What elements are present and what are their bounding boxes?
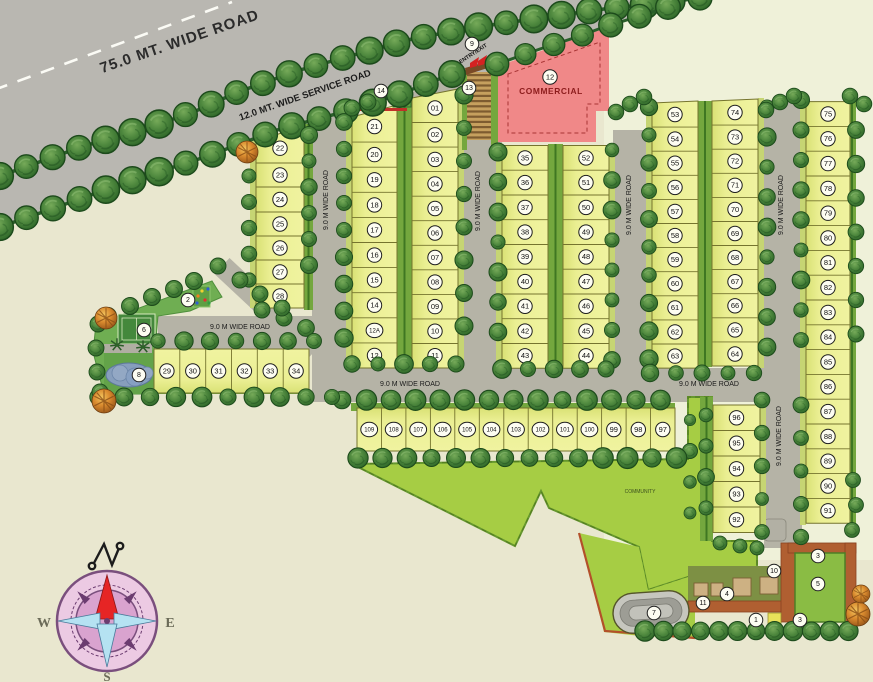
- svg-text:58: 58: [671, 231, 679, 240]
- svg-text:30: 30: [189, 366, 197, 375]
- svg-text:08: 08: [431, 277, 439, 286]
- svg-text:48: 48: [582, 252, 590, 261]
- svg-text:69: 69: [731, 229, 739, 238]
- svg-text:9.0 M WIDE ROAD: 9.0 M WIDE ROAD: [679, 381, 739, 388]
- svg-text:31: 31: [214, 366, 222, 375]
- svg-text:39: 39: [521, 252, 529, 261]
- svg-text:79: 79: [824, 209, 832, 218]
- svg-text:93: 93: [732, 490, 740, 499]
- svg-text:71: 71: [731, 181, 739, 190]
- svg-text:77: 77: [824, 159, 832, 168]
- svg-text:17: 17: [370, 225, 378, 234]
- svg-text:13: 13: [465, 85, 473, 92]
- svg-text:38: 38: [521, 227, 529, 236]
- svg-text:45: 45: [582, 326, 590, 335]
- svg-text:63: 63: [671, 351, 679, 360]
- svg-text:51: 51: [582, 178, 590, 187]
- svg-text:16: 16: [370, 250, 378, 259]
- svg-text:42: 42: [521, 326, 529, 335]
- svg-text:102: 102: [535, 427, 546, 433]
- svg-text:94: 94: [732, 464, 740, 473]
- svg-text:22: 22: [276, 144, 284, 153]
- svg-text:15: 15: [370, 275, 378, 284]
- svg-text:53: 53: [671, 110, 679, 119]
- svg-text:54: 54: [671, 134, 679, 143]
- svg-text:106: 106: [438, 427, 449, 433]
- svg-text:20: 20: [370, 150, 378, 159]
- svg-text:43: 43: [521, 351, 529, 360]
- svg-text:97: 97: [659, 425, 667, 434]
- svg-text:29: 29: [163, 366, 171, 375]
- svg-text:74: 74: [731, 108, 739, 117]
- svg-text:11: 11: [699, 600, 706, 607]
- svg-text:68: 68: [731, 253, 739, 262]
- svg-text:73: 73: [731, 132, 739, 141]
- svg-text:14: 14: [370, 301, 378, 310]
- svg-text:9.0 M WIDE ROAD: 9.0 M WIDE ROAD: [475, 171, 482, 231]
- svg-text:103: 103: [511, 427, 522, 433]
- svg-text:90: 90: [824, 481, 832, 490]
- svg-text:28: 28: [276, 291, 284, 300]
- svg-text:6: 6: [142, 327, 146, 334]
- svg-text:100: 100: [584, 427, 595, 433]
- svg-text:9.0 M WIDE ROAD: 9.0 M WIDE ROAD: [380, 381, 440, 388]
- svg-text:12A: 12A: [369, 328, 380, 334]
- svg-text:25: 25: [276, 219, 284, 228]
- svg-text:109: 109: [364, 427, 375, 433]
- svg-text:01: 01: [431, 103, 439, 112]
- svg-text:9.0 M WIDE ROAD: 9.0 M WIDE ROAD: [778, 175, 785, 235]
- svg-text:87: 87: [824, 407, 832, 416]
- svg-text:66: 66: [731, 301, 739, 310]
- svg-text:72: 72: [731, 157, 739, 166]
- svg-text:32: 32: [240, 366, 248, 375]
- svg-text:S: S: [103, 669, 110, 682]
- svg-text:82: 82: [824, 283, 832, 292]
- svg-text:105: 105: [462, 427, 473, 433]
- svg-text:26: 26: [276, 243, 284, 252]
- svg-text:8: 8: [137, 372, 141, 379]
- svg-text:101: 101: [560, 427, 571, 433]
- svg-text:86: 86: [824, 382, 832, 391]
- svg-text:57: 57: [671, 207, 679, 216]
- svg-text:52: 52: [582, 153, 590, 162]
- svg-text:9.0 M WIDE ROAD: 9.0 M WIDE ROAD: [626, 175, 633, 235]
- svg-text:40: 40: [521, 277, 529, 286]
- svg-text:2: 2: [186, 297, 190, 304]
- svg-text:41: 41: [521, 302, 529, 311]
- svg-text:44: 44: [582, 351, 590, 360]
- svg-text:9.0 M WIDE ROAD: 9.0 M WIDE ROAD: [323, 170, 330, 230]
- svg-text:24: 24: [276, 195, 284, 204]
- svg-text:E: E: [165, 616, 174, 631]
- svg-text:03: 03: [431, 155, 439, 164]
- svg-text:5: 5: [816, 581, 820, 588]
- svg-text:91: 91: [824, 506, 832, 515]
- svg-text:47: 47: [582, 277, 590, 286]
- svg-text:10: 10: [770, 568, 778, 575]
- svg-text:88: 88: [824, 432, 832, 441]
- svg-text:107: 107: [413, 427, 424, 433]
- svg-text:12: 12: [546, 72, 554, 81]
- svg-text:1: 1: [754, 617, 758, 624]
- svg-text:67: 67: [731, 277, 739, 286]
- svg-text:09: 09: [431, 302, 439, 311]
- svg-text:65: 65: [731, 325, 739, 334]
- svg-text:84: 84: [824, 333, 832, 342]
- svg-text:59: 59: [671, 255, 679, 264]
- svg-text:62: 62: [671, 327, 679, 336]
- svg-text:37: 37: [521, 203, 529, 212]
- svg-text:07: 07: [431, 253, 439, 262]
- svg-text:36: 36: [521, 178, 529, 187]
- svg-text:9: 9: [470, 41, 474, 48]
- svg-text:70: 70: [731, 205, 739, 214]
- svg-text:14: 14: [377, 88, 385, 95]
- svg-text:7: 7: [652, 610, 656, 617]
- svg-text:78: 78: [824, 184, 832, 193]
- svg-text:27: 27: [276, 267, 284, 276]
- svg-text:89: 89: [824, 457, 832, 466]
- svg-text:04: 04: [431, 179, 439, 188]
- svg-text:80: 80: [824, 233, 832, 242]
- svg-text:98: 98: [634, 425, 642, 434]
- svg-text:COMMUNITY: COMMUNITY: [625, 489, 656, 495]
- svg-text:64: 64: [731, 349, 739, 358]
- svg-text:3: 3: [798, 617, 802, 624]
- svg-text:76: 76: [824, 134, 832, 143]
- svg-text:61: 61: [671, 303, 679, 312]
- svg-text:3: 3: [816, 553, 820, 560]
- svg-text:02: 02: [431, 130, 439, 139]
- svg-text:9.0 M WIDE ROAD: 9.0 M WIDE ROAD: [210, 324, 270, 331]
- svg-text:75: 75: [824, 109, 832, 118]
- svg-text:92: 92: [732, 515, 740, 524]
- svg-text:18: 18: [370, 200, 378, 209]
- svg-text:21: 21: [370, 122, 378, 131]
- svg-text:50: 50: [582, 203, 590, 212]
- svg-text:81: 81: [824, 258, 832, 267]
- svg-text:10: 10: [431, 327, 439, 336]
- svg-text:06: 06: [431, 228, 439, 237]
- svg-text:COMMERCIAL: COMMERCIAL: [519, 86, 583, 96]
- svg-text:46: 46: [582, 302, 590, 311]
- svg-text:85: 85: [824, 357, 832, 366]
- svg-text:05: 05: [431, 204, 439, 213]
- svg-text:W: W: [37, 616, 51, 631]
- svg-text:9.0 M WIDE ROAD: 9.0 M WIDE ROAD: [776, 406, 783, 466]
- svg-text:55: 55: [671, 159, 679, 168]
- svg-text:35: 35: [521, 153, 529, 162]
- svg-text:4: 4: [725, 591, 729, 598]
- svg-text:108: 108: [389, 427, 400, 433]
- svg-text:19: 19: [370, 175, 378, 184]
- svg-text:60: 60: [671, 279, 679, 288]
- svg-text:96: 96: [732, 413, 740, 422]
- svg-text:83: 83: [824, 308, 832, 317]
- svg-text:99: 99: [610, 425, 618, 434]
- svg-text:33: 33: [266, 366, 274, 375]
- svg-text:56: 56: [671, 183, 679, 192]
- svg-text:95: 95: [732, 439, 740, 448]
- svg-text:104: 104: [486, 427, 497, 433]
- svg-text:34: 34: [292, 366, 300, 375]
- svg-text:23: 23: [276, 170, 284, 179]
- svg-text:49: 49: [582, 227, 590, 236]
